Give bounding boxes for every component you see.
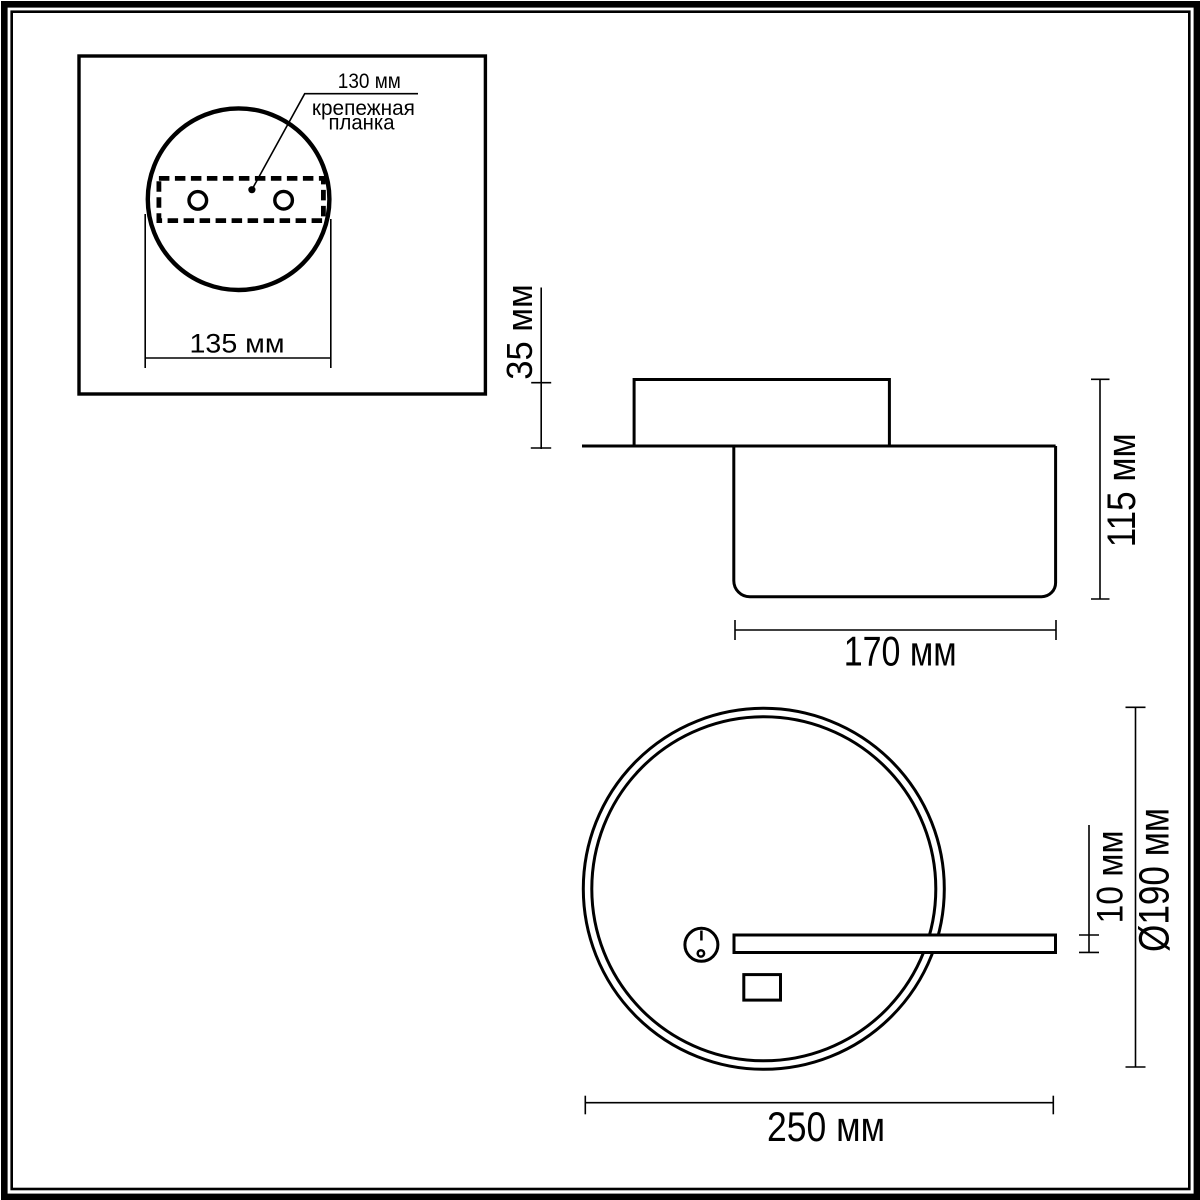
svg-text:170 мм: 170 мм xyxy=(844,628,957,675)
svg-text:35 мм: 35 мм xyxy=(499,284,540,380)
svg-text:130 мм: 130 мм xyxy=(338,69,401,93)
svg-text:Ø190 мм: Ø190 мм xyxy=(1132,808,1179,952)
svg-text:10 мм: 10 мм xyxy=(1089,831,1131,924)
svg-text:135 мм: 135 мм xyxy=(190,329,285,359)
svg-text:115 мм: 115 мм xyxy=(1100,433,1144,547)
svg-text:планка: планка xyxy=(329,109,396,134)
svg-text:250 мм: 250 мм xyxy=(767,1103,885,1150)
